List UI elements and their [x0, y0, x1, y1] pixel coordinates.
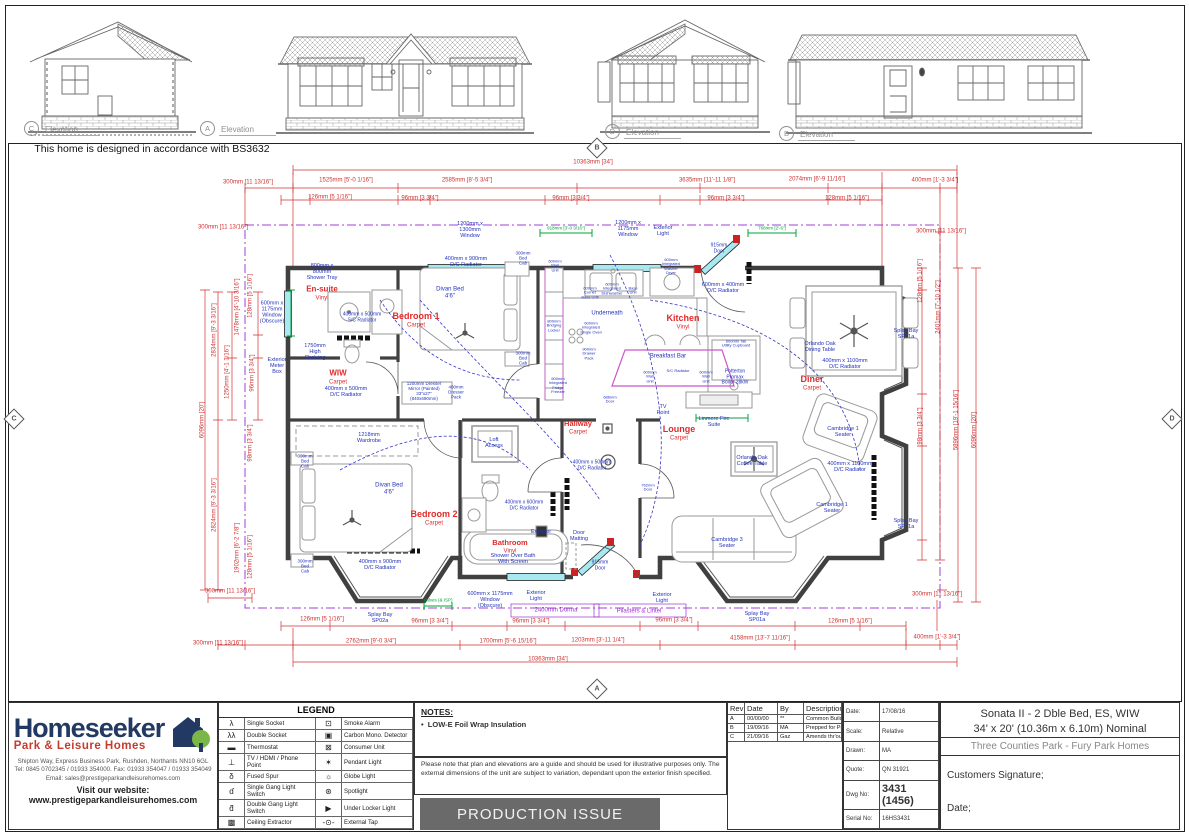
info-value: 16HS3431 [880, 810, 939, 829]
legend-label-tv-hdmi-phone-point: TV / HDMI / Phone Point [245, 754, 316, 771]
legend-label-spotlight: Spotlight [342, 783, 413, 800]
info-label: Drawn: [844, 742, 880, 761]
revision-block: RevDateByDescriptionA00/00/00**Common Bu… [727, 702, 843, 830]
drawing-sheet: This home is designed in accordance with… [0, 0, 1189, 836]
drawing-title-line2: 34' x 20' (10.36m x 6.10m) Nominal [941, 722, 1179, 737]
rev-cell: 00/00/00 [745, 715, 778, 724]
elevation-label: Elevation [43, 125, 100, 136]
ceiling-extractor-icon: ▩ [219, 817, 245, 829]
rev-cell: Amends thr'out & Productionised [804, 733, 842, 742]
signature-date-label: Date; [941, 781, 1179, 814]
drawing-title-block: Sonata II - 2 Dble Bed, ES, WIW 34' x 20… [940, 702, 1180, 830]
address-line1: Shipton Way, Express Business Park, Rush… [9, 758, 217, 766]
address-line3: Email: sales@prestigeparkandleisurehomes… [9, 775, 217, 783]
info-label: Scale: [844, 722, 880, 741]
elevation-marker-C: CElevation [24, 121, 100, 136]
elevation-c [28, 22, 196, 135]
rev-cell: 19/09/16 [745, 724, 778, 733]
single-gang-light-switch-icon: ɗ [219, 783, 245, 800]
smoke-alarm-icon: ⊡ [316, 718, 342, 730]
legend-title: LEGEND [219, 703, 413, 718]
fused-spur-icon: δ [219, 771, 245, 783]
legend-label-double-socket: Double Socket [245, 730, 316, 742]
production-issue-stamp: PRODUCTION ISSUE [420, 798, 660, 830]
notes-box: NOTES: • LOW-E Foil Wrap Insulation [414, 702, 727, 757]
address-line2: Tel: 0845 0702345 / 01933 354000. Fax: 0… [9, 766, 217, 774]
info-label: Quote: [844, 761, 880, 780]
drawing-title-line1: Sonata II - 2 Dble Bed, ES, WIW [941, 707, 1179, 722]
customer-signature-label: Customers Signature; [941, 756, 1179, 781]
notes-block: NOTES: • LOW-E Foil Wrap Insulation Plea… [414, 702, 727, 830]
rev-header: Date [745, 703, 778, 715]
consumer-unit-icon: ⊠ [316, 742, 342, 754]
rev-header: Description [804, 703, 842, 715]
rev-cell: Prepped for Production [804, 724, 842, 733]
tv-hdmi-phone-point-icon: ⊥ [219, 754, 245, 771]
notes-bullet: • LOW-E Foil Wrap Insulation [421, 720, 720, 729]
legend-label-external-tap: External Tap [342, 817, 413, 829]
thermostat-icon: ▬ [219, 742, 245, 754]
legend-label-fused-spur: Fused Spur [245, 771, 316, 783]
carbon-mono-detector-icon: ▣ [316, 730, 342, 742]
elevation-marker-A: AElevation [200, 121, 276, 136]
rev-cell: MA [778, 724, 804, 733]
info-value: Relative [880, 722, 939, 741]
disclaimer-text: Please note that plan and elevations are… [421, 761, 720, 779]
info-label: Serial No: [844, 810, 880, 829]
spotlight-icon: ⊛ [316, 783, 342, 800]
legend-label-smoke-alarm: Smoke Alarm [342, 718, 413, 730]
park-name: Three Counties Park - Fury Park Homes [941, 738, 1179, 756]
info-block: Date:17/08/16Scale:RelativeDrawn:MAQuote… [843, 702, 940, 830]
elevation-letter: A [200, 121, 215, 136]
info-value: QN 31921 [880, 761, 939, 780]
info-label: Date: [844, 703, 880, 722]
double-socket-icon: λλ [219, 730, 245, 742]
legend-label-under-locker-light: Under Locker Light [342, 800, 413, 817]
notes-title: NOTES: [421, 707, 720, 717]
legend-label-single-gang-light-switch: Single Gang Light Switch [245, 783, 316, 800]
legend-label-double-gang-light-switch: Double Gang Light Switch [245, 800, 316, 817]
external-tap-icon: -⊙- [316, 817, 342, 829]
elevation-marker-D: DElevation [605, 124, 681, 139]
elevation-label: Elevation [624, 128, 681, 139]
disclaimer-box: Please note that plan and elevations are… [414, 757, 727, 795]
rev-cell: Common Build Applied [804, 715, 842, 724]
legend-label-globe-light: Globe Light [342, 771, 413, 783]
website-line: Visit our website: www.prestigeparkandle… [9, 785, 217, 805]
elevation-letter: B [779, 126, 794, 141]
legend-label-consumer-unit: Consumer Unit [342, 742, 413, 754]
legend-block: LEGEND λSingle Socket⊡Smoke AlarmλλDoubl… [218, 702, 414, 830]
elevation-label: Elevation [219, 125, 276, 136]
company-tagline: Park & Leisure Homes [14, 740, 165, 752]
rev-cell: B [728, 724, 745, 733]
elevation-letter: C [24, 121, 39, 136]
furniture [291, 262, 918, 569]
homeseeker-house-icon [170, 713, 212, 753]
elevation-letter: D [605, 124, 620, 139]
legend-label-single-socket: Single Socket [245, 718, 316, 730]
info-label: Dwg No: [844, 781, 880, 810]
legend-label-pendant-light: Pendant Light [342, 754, 413, 771]
legend-label-ceiling-extractor: Ceiling Extractor [245, 817, 316, 829]
globe-light-icon: ☼ [316, 771, 342, 783]
legend-label-carbon-mono-detector: Carbon Mono. Detector [342, 730, 413, 742]
info-value: MA [880, 742, 939, 761]
elevation-b [786, 35, 1092, 133]
rev-cell: ** [778, 715, 804, 724]
company-name: Homeseeker [14, 715, 165, 742]
elevation-marker-B: BElevation [779, 126, 855, 141]
logo-block: Homeseeker Park & Leisure Homes Shipton … [8, 702, 218, 830]
rev-cell: C [728, 733, 745, 742]
rev-cell: A [728, 715, 745, 724]
rev-cell: Gaz [778, 733, 804, 742]
elevation-a [276, 34, 534, 133]
under-locker-light-icon: ▶ [316, 800, 342, 817]
rev-header: Rev [728, 703, 745, 715]
rev-cell: 21/09/16 [745, 733, 778, 742]
double-gang-light-switch-icon: ƌ [219, 800, 245, 817]
rev-header: By [778, 703, 804, 715]
pendant-light-icon: ✶ [316, 754, 342, 771]
elevation-d [598, 20, 770, 132]
legend-label-thermostat: Thermostat [245, 742, 316, 754]
single-socket-icon: λ [219, 718, 245, 730]
elevation-label: Elevation [798, 130, 855, 141]
info-value: 3431 (1456) [880, 781, 939, 810]
info-value: 17/08/16 [880, 703, 939, 722]
